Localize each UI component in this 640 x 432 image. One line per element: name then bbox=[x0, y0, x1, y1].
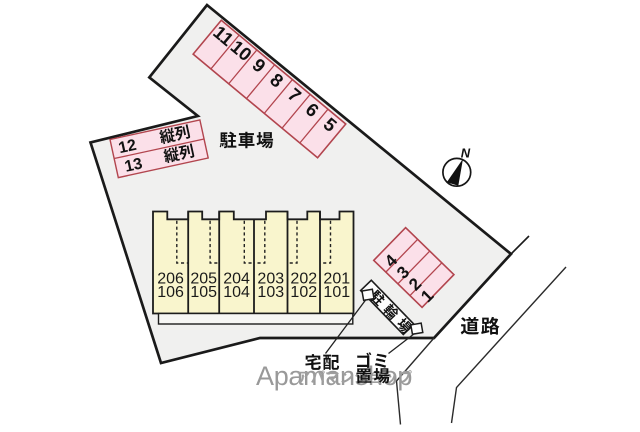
svg-text:104: 104 bbox=[223, 284, 250, 301]
svg-text:102: 102 bbox=[290, 284, 317, 301]
svg-text:105: 105 bbox=[190, 284, 217, 301]
svg-text:103: 103 bbox=[257, 284, 284, 301]
svg-text:106: 106 bbox=[157, 284, 184, 301]
svg-text:N: N bbox=[461, 146, 471, 161]
svg-text:101: 101 bbox=[323, 284, 350, 301]
